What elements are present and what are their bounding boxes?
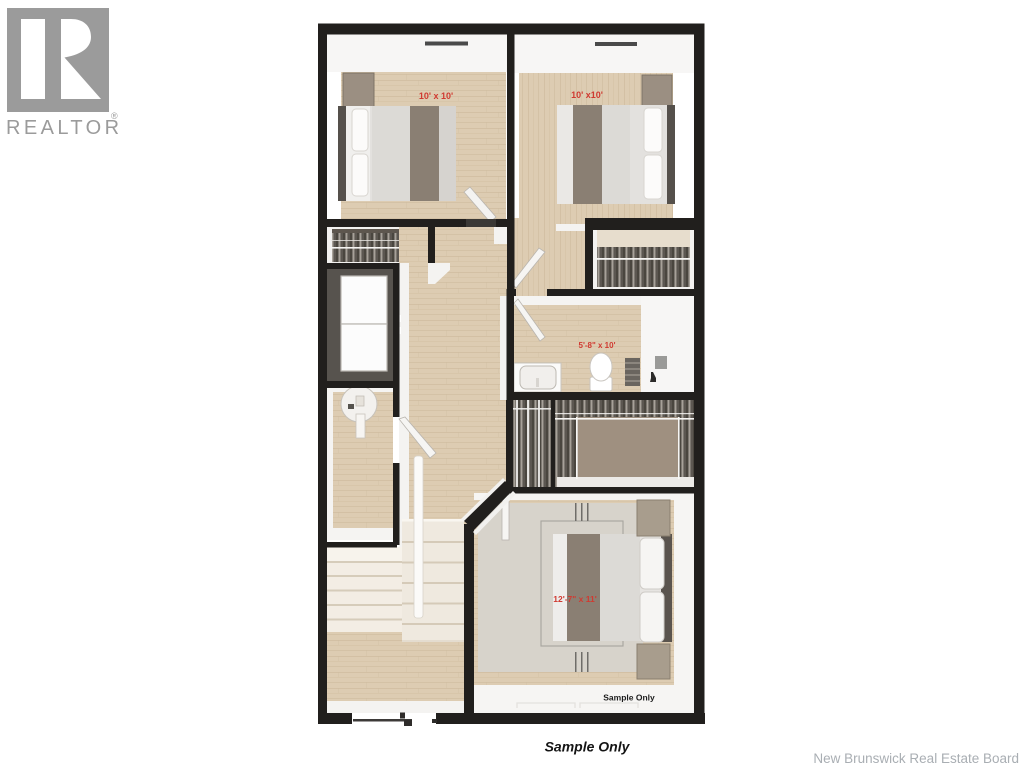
svg-text:New Brunswick Real Estate Boar: New Brunswick Real Estate Board <box>813 751 1019 766</box>
svg-text:Sample Only: Sample Only <box>603 693 655 703</box>
svg-text:10' x10': 10' x10' <box>571 90 603 100</box>
svg-text:10' x 10': 10' x 10' <box>419 91 453 101</box>
svg-text:®: ® <box>111 111 118 121</box>
svg-text:Sample Only: Sample Only <box>545 739 631 755</box>
svg-text:REALTOR: REALTOR <box>6 117 122 139</box>
svg-text:5'-8" x 10': 5'-8" x 10' <box>579 341 616 350</box>
svg-text:12'-7" x 11': 12'-7" x 11' <box>553 594 597 604</box>
